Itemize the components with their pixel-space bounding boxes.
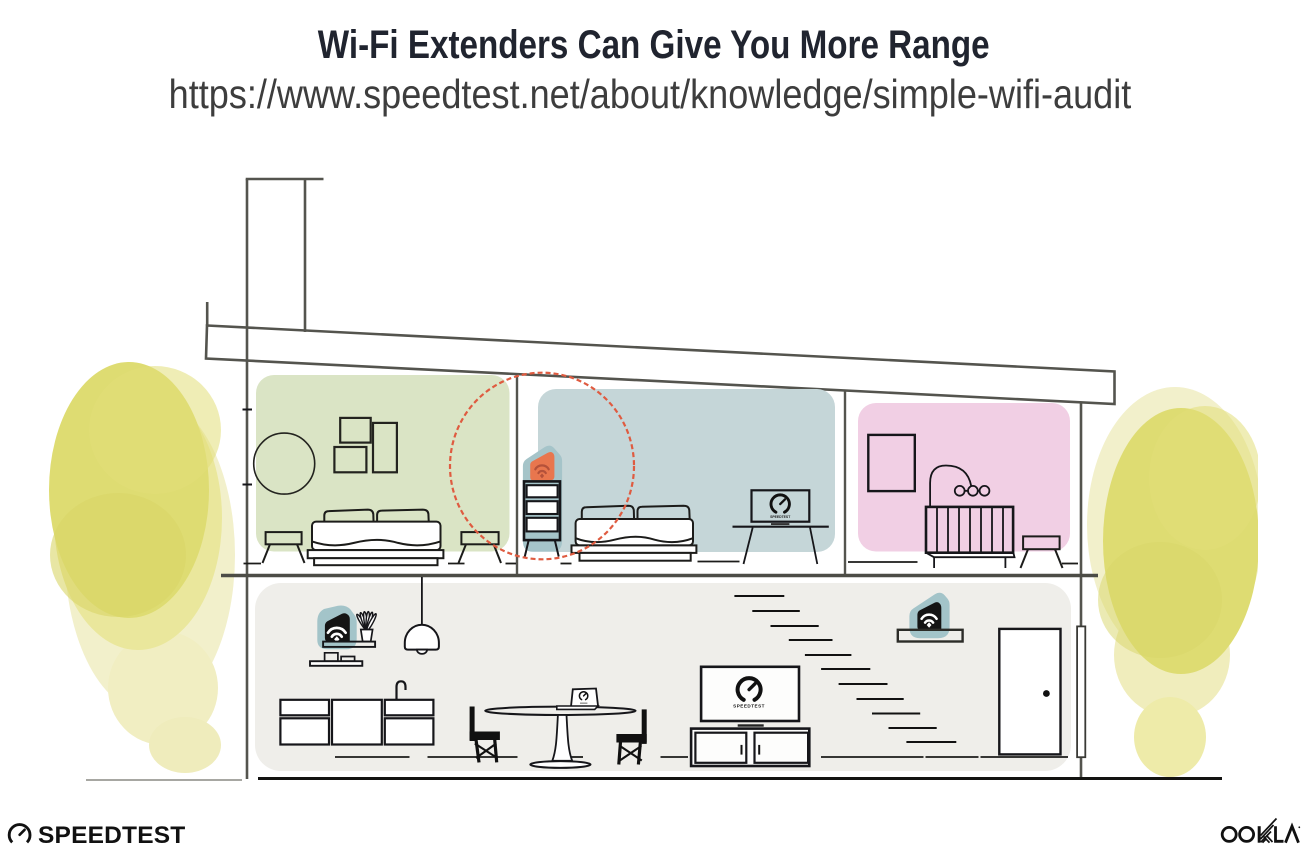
svg-text:SPEEDTEST: SPEEDTEST: [38, 822, 185, 849]
svg-text:SPEEDTEST: SPEEDTEST: [770, 515, 791, 519]
svg-text:SPEEDTEST: SPEEDTEST: [733, 704, 765, 709]
